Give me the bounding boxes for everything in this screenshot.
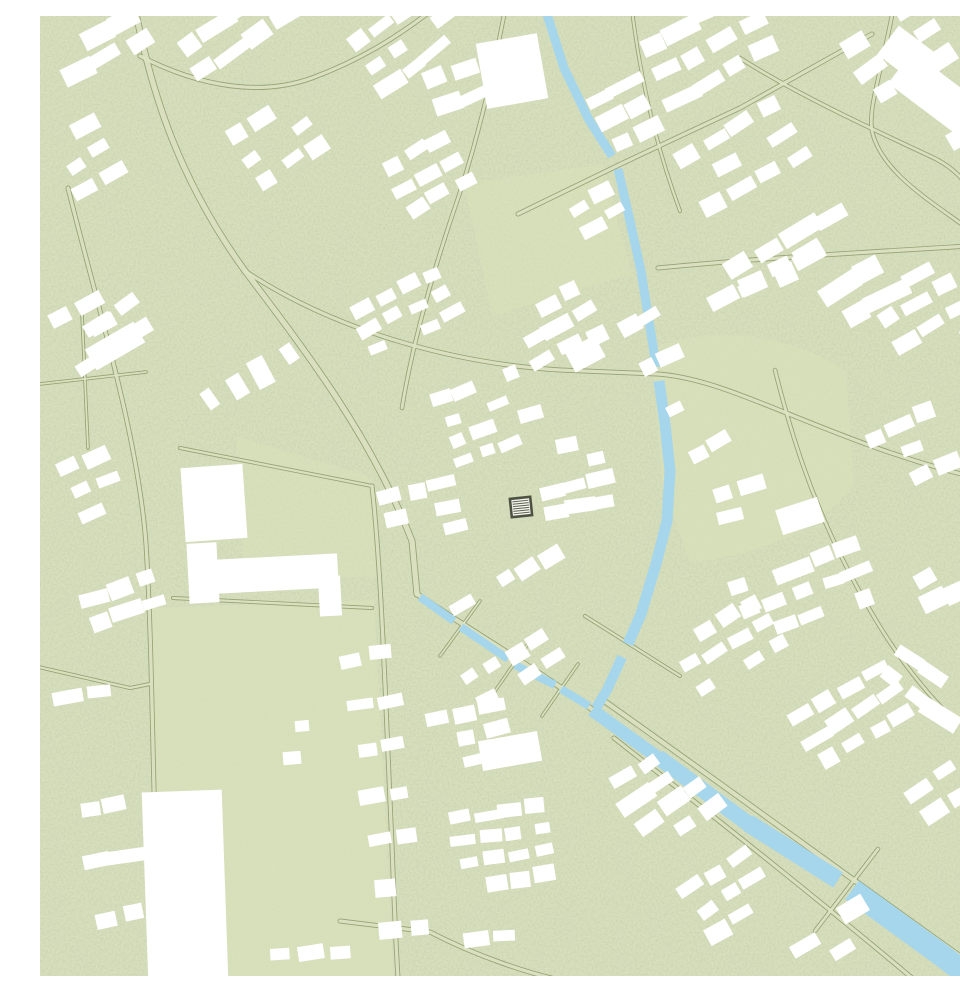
building-footprint xyxy=(408,482,428,501)
site-plan-svg xyxy=(40,16,960,976)
building-footprint xyxy=(374,878,396,897)
building-footprint xyxy=(87,684,112,698)
building-footprint xyxy=(493,930,515,942)
building-footprint xyxy=(532,863,556,883)
building-footprint xyxy=(504,826,522,841)
building-footprint xyxy=(378,921,403,940)
highlighted-building xyxy=(508,495,533,518)
building-footprint xyxy=(270,948,290,961)
site-plan-map xyxy=(40,16,960,976)
building-footprint xyxy=(497,802,523,818)
landmark-building-footprint xyxy=(476,33,549,109)
building-footprint xyxy=(480,828,503,843)
building-footprint xyxy=(396,827,418,844)
landmark-building-footprint xyxy=(142,790,229,976)
landmark-building-footprint xyxy=(180,464,247,542)
building-footprint xyxy=(509,871,531,889)
highlight-layer xyxy=(508,495,533,518)
landmark-building-footprint xyxy=(186,542,219,603)
page: { "map": { "type": "architectural-site-p… xyxy=(0,16,960,976)
landmark-building-footprint xyxy=(318,575,342,616)
building-footprint xyxy=(456,729,475,746)
building-footprint xyxy=(485,874,508,893)
building-footprint xyxy=(80,801,101,817)
landmark-building-footprint xyxy=(295,720,310,732)
building-footprint xyxy=(369,644,392,660)
building-footprint xyxy=(410,919,429,936)
building-footprint xyxy=(534,822,550,835)
building-footprint xyxy=(358,743,378,758)
building-footprint xyxy=(330,946,351,960)
building-footprint xyxy=(524,797,545,814)
landmark-building-footprint xyxy=(282,751,301,766)
building-footprint xyxy=(482,849,505,866)
